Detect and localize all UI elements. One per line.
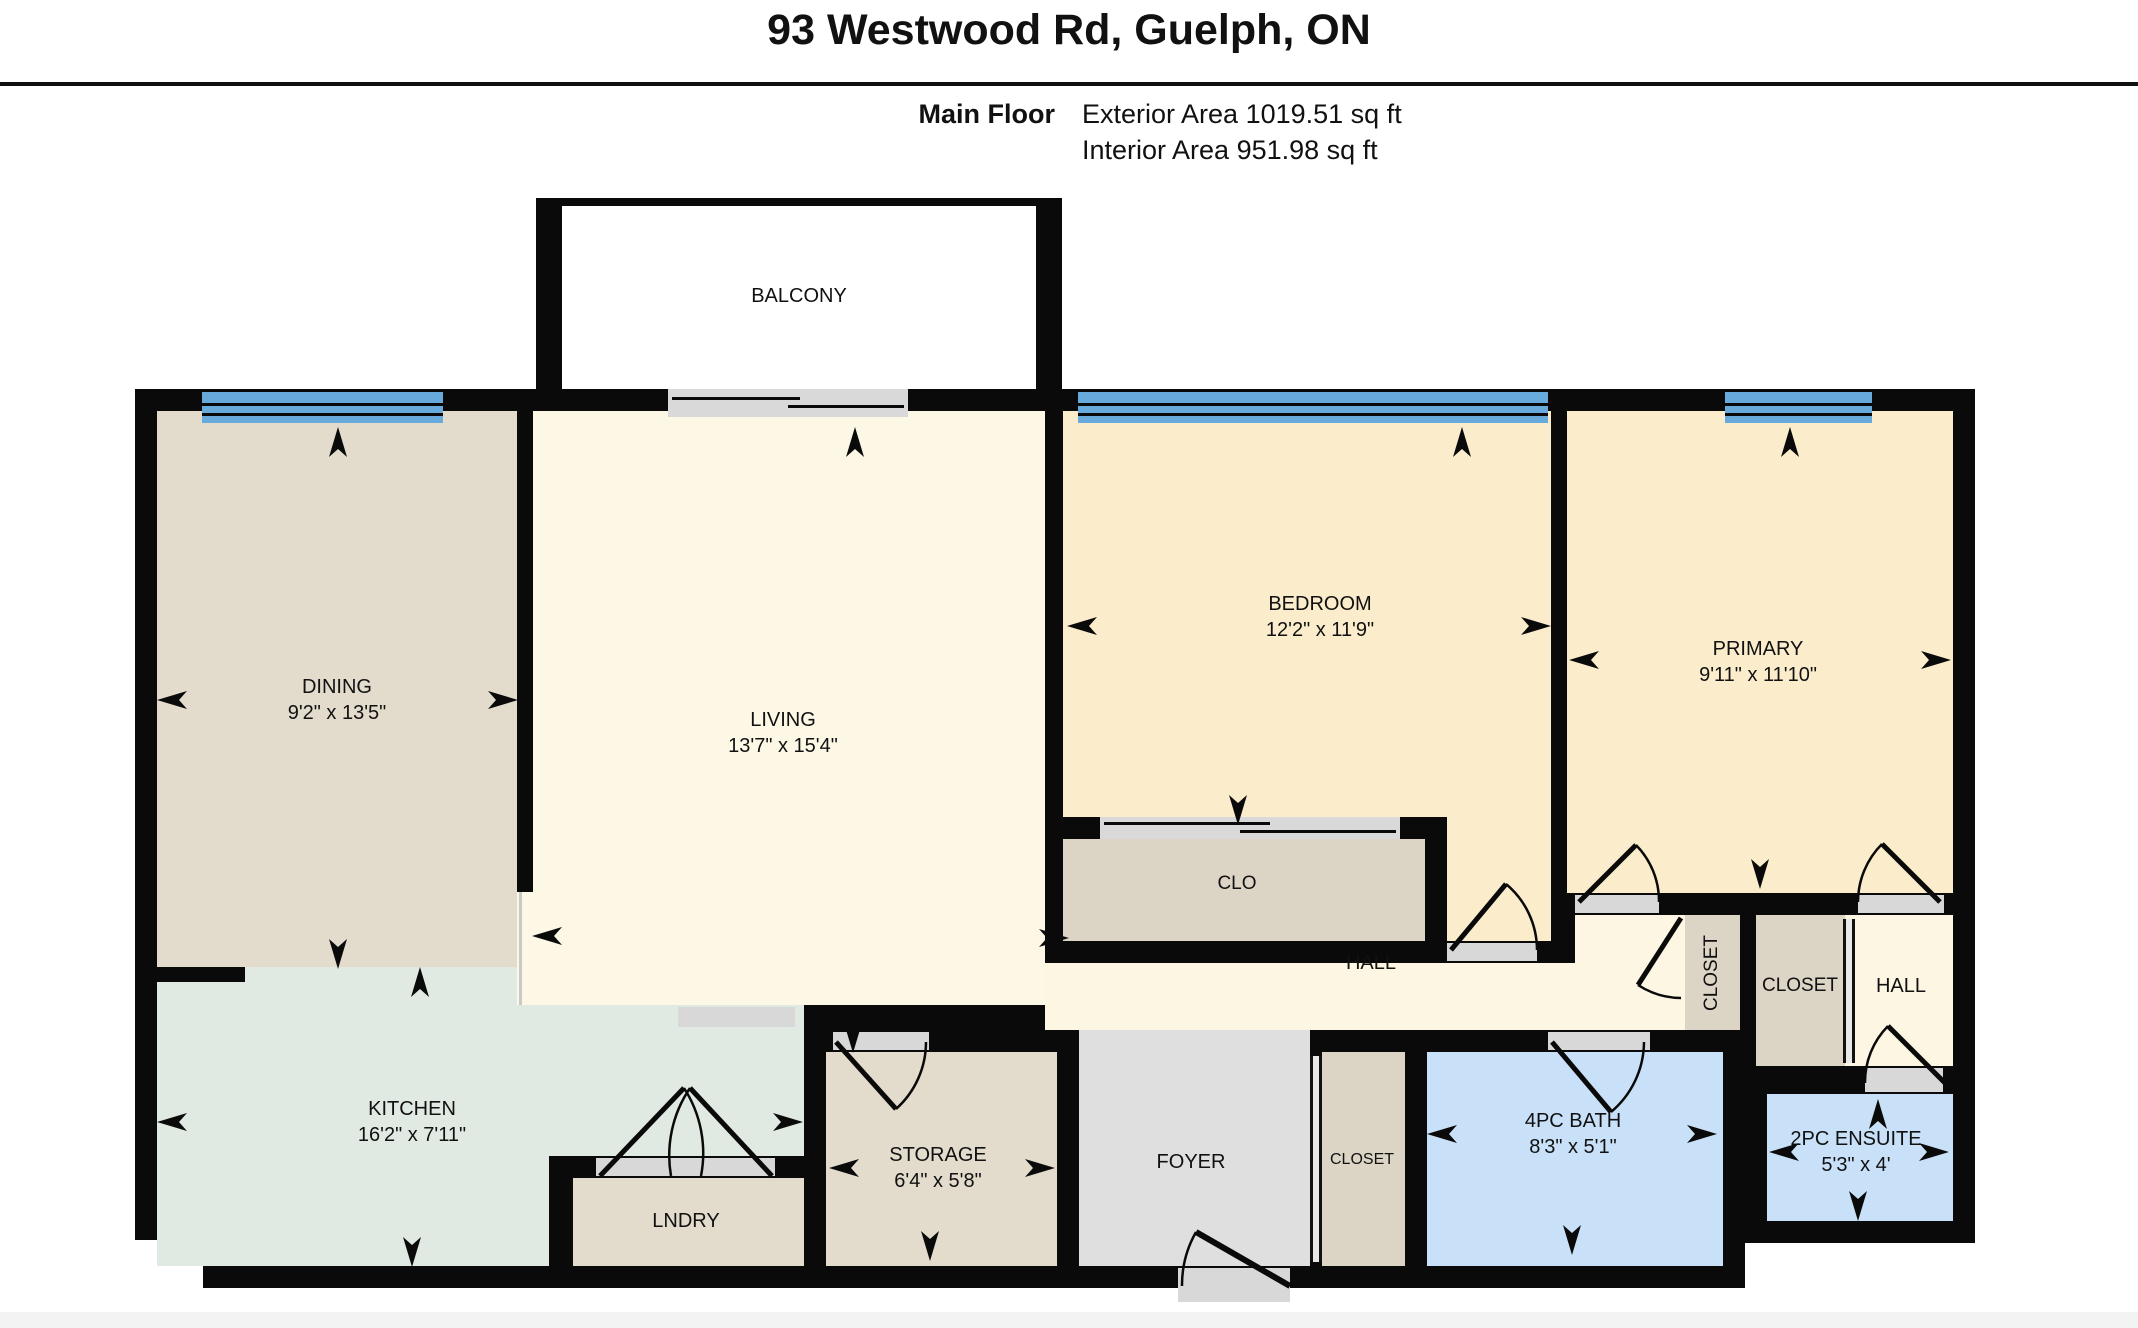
dining-label: DINING 9'2" x 13'5" bbox=[288, 674, 387, 726]
entry-door-sill bbox=[1178, 1268, 1290, 1302]
closet-foyer-label: CLOSET bbox=[1330, 1147, 1394, 1173]
bath-label: 4PC BATH 8'3" x 5'1" bbox=[1525, 1108, 1621, 1160]
window-mullion bbox=[202, 413, 443, 416]
sliding-panel-line bbox=[1240, 830, 1396, 833]
window-primary bbox=[1725, 389, 1872, 423]
balcony-label: BALCONY bbox=[751, 283, 847, 309]
room-name: PRIMARY bbox=[1699, 636, 1817, 662]
room-name: HALL bbox=[1876, 975, 1926, 997]
primary-hall-door-sill bbox=[1858, 895, 1944, 913]
interior-area: Interior Area 951.98 sq ft bbox=[1082, 135, 1378, 166]
bedroom-door-sill bbox=[1447, 943, 1537, 961]
window-mullion bbox=[1725, 413, 1872, 416]
living-kitchen-opening bbox=[678, 1007, 795, 1027]
window-mullion bbox=[1078, 413, 1548, 416]
window-mullion bbox=[1725, 403, 1872, 406]
sliding-panel-line bbox=[1104, 822, 1270, 825]
room-name: BEDROOM bbox=[1266, 591, 1374, 617]
balcony-sliding-door bbox=[668, 389, 908, 417]
storage-label: STORAGE 6'4" x 5'8" bbox=[889, 1142, 986, 1194]
footer-strip bbox=[0, 1312, 2138, 1328]
bath-door-sill bbox=[1548, 1032, 1650, 1050]
lndry-door-sill bbox=[596, 1158, 775, 1176]
lndry-label: LNDRY bbox=[652, 1208, 719, 1234]
room-dims: 9'11" x 11'10" bbox=[1699, 662, 1817, 688]
room-dims: 13'7" x 15'4" bbox=[728, 733, 838, 759]
header-divider bbox=[0, 82, 2138, 86]
room-name: CLOSET bbox=[1762, 975, 1838, 996]
ensuite-door-sill bbox=[1865, 1068, 1943, 1092]
exterior-area: Exterior Area 1019.51 sq ft bbox=[1082, 99, 1402, 130]
room-name: KITCHEN bbox=[358, 1096, 466, 1122]
room-name: FOYER bbox=[1157, 1151, 1226, 1173]
hall-label: HALL bbox=[1346, 950, 1396, 976]
room-foyer bbox=[1079, 1030, 1310, 1266]
window-dining bbox=[202, 389, 443, 423]
room-dims: 16'2" x 7'11" bbox=[358, 1122, 466, 1148]
opening-line bbox=[519, 892, 522, 1005]
bedroom-label: BEDROOM 12'2" x 11'9" bbox=[1266, 591, 1374, 643]
room-bedroom-ext bbox=[1447, 817, 1551, 941]
lndry-left-wall bbox=[549, 1156, 573, 1266]
ensuite-label: 2PC ENSUITE 5'3" x 4' bbox=[1790, 1126, 1921, 1178]
clo-sliding-door bbox=[1100, 817, 1400, 839]
closet-hall-label: CLOSET bbox=[1699, 935, 1725, 1011]
room-dims: 12'2" x 11'9" bbox=[1266, 617, 1374, 643]
floorplan-page: 93 Westwood Rd, Guelph, ON Main Floor Ex… bbox=[0, 0, 2138, 1328]
primary-label: PRIMARY 9'11" x 11'10" bbox=[1699, 636, 1817, 688]
room-dims: 8'3" x 5'1" bbox=[1525, 1134, 1621, 1160]
foyer-label: FOYER bbox=[1157, 1149, 1226, 1175]
room-dims: 9'2" x 13'5" bbox=[288, 700, 387, 726]
floor-label: Main Floor bbox=[855, 99, 1055, 130]
kitchen-label: KITCHEN 16'2" x 7'11" bbox=[358, 1096, 466, 1148]
room-name: CLOSET bbox=[1701, 935, 1722, 1011]
clo-label: CLO bbox=[1217, 871, 1256, 897]
storage-door-sill bbox=[833, 1032, 929, 1050]
page-title: 93 Westwood Rd, Guelph, ON bbox=[0, 6, 2138, 55]
room-name: DINING bbox=[288, 674, 387, 700]
window-mullion bbox=[202, 403, 443, 406]
room-name: 4PC BATH bbox=[1525, 1108, 1621, 1134]
room-dims: 5'3" x 4' bbox=[1790, 1152, 1921, 1178]
foyer-closet-sliding-door bbox=[1310, 1056, 1322, 1262]
balcony-left-wall bbox=[536, 198, 562, 389]
room-name: BALCONY bbox=[751, 285, 847, 307]
window-bedroom bbox=[1078, 389, 1548, 423]
room-dims: 6'4" x 5'8" bbox=[889, 1168, 986, 1194]
room-name: 2PC ENSUITE bbox=[1790, 1126, 1921, 1152]
sliding-panel-line bbox=[672, 397, 800, 400]
room-hall-upper bbox=[1575, 915, 1685, 963]
room-name: STORAGE bbox=[889, 1142, 986, 1168]
room-name: CLOSET bbox=[1330, 1151, 1394, 1168]
room-name: HALL bbox=[1346, 952, 1396, 974]
bottom-right-notch bbox=[1745, 1243, 1975, 1288]
balcony-right-wall bbox=[1036, 198, 1062, 389]
room-name: LNDRY bbox=[652, 1210, 719, 1232]
living-label: LIVING 13'7" x 15'4" bbox=[728, 707, 838, 759]
primary-door-sill bbox=[1575, 895, 1659, 913]
right-closet-sliding-door bbox=[1843, 919, 1855, 1063]
balcony-top-wall bbox=[536, 198, 1062, 206]
closet-right-label: CLOSET bbox=[1762, 973, 1838, 999]
window-mullion bbox=[1078, 403, 1548, 406]
room-name: LIVING bbox=[728, 707, 838, 733]
sliding-panel-line bbox=[788, 405, 904, 408]
hall-right-label: HALL bbox=[1876, 973, 1926, 999]
dining-kitchen-stub-wall bbox=[157, 967, 245, 982]
room-name: CLO bbox=[1217, 873, 1256, 894]
